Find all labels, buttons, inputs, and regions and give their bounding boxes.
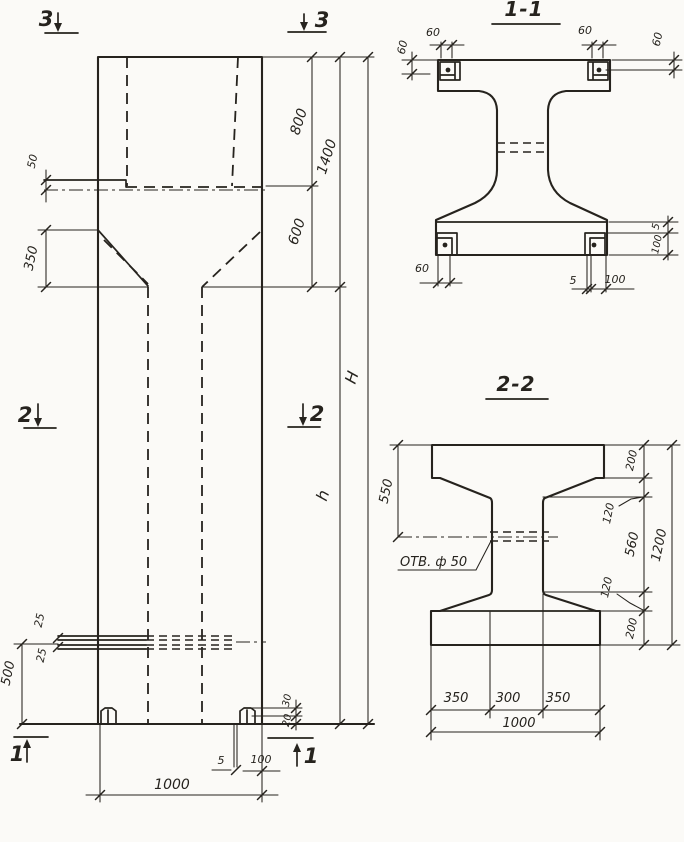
dim-label-5-bottom: 5 (570, 274, 577, 287)
dim-label-200-bottom: 200 (623, 617, 640, 640)
dim-label-550: 550 (377, 478, 397, 505)
dim-label-60-right: 60 (650, 31, 666, 47)
dim-label-120-top: 120 (600, 502, 617, 525)
dim-label-5-right: 5 (651, 222, 663, 231)
marker-1-left: 1 (10, 742, 25, 766)
dim-label-350-left: 350 (444, 691, 469, 706)
dim-label-560: 560 (623, 531, 643, 558)
dim-label-h: h (312, 488, 333, 504)
hidden-anchor-plates (146, 636, 236, 649)
column-elevation-view: 3 3 2 2 1 1 50 350 800 600 1400 h H 25 2… (0, 7, 374, 802)
section-1-1-outline (436, 60, 610, 255)
dim-label-1400: 1400 (314, 137, 340, 176)
dim-label-100-base: 100 (251, 753, 272, 766)
dim-label-350-right: 350 (546, 691, 571, 706)
section-2-2-dim-ticks (394, 441, 677, 737)
section-1-1-web-ties (497, 143, 548, 152)
dim-label-1000-section: 1000 (502, 716, 535, 731)
dim-label-120-bottom: 120 (598, 576, 615, 599)
anchor-dot-bottom-right (592, 243, 597, 248)
section-1-1-view: 1-1 60 60 60 60 60 5 100 5 100 (395, 0, 682, 294)
dim-label-500: 500 (0, 660, 18, 687)
dim-label-60-left: 60 (395, 39, 411, 55)
dim-label-200-top: 200 (623, 449, 640, 472)
section-2-2-title: 2-2 (496, 372, 535, 396)
dim-label-60-top-left: 60 (426, 26, 440, 39)
dim-label-60-top-right: 60 (578, 24, 592, 37)
dim-label-300-mid: 300 (496, 691, 521, 706)
anchor-plates (58, 636, 146, 649)
dim-label-20: 20 (281, 713, 294, 728)
dim-label-800: 800 (287, 107, 311, 137)
hidden-web-edges (104, 57, 262, 724)
marker-2-left: 2 (18, 403, 33, 427)
dim-label-25-lower: 25 (34, 647, 50, 663)
dim-label-100-bottom: 100 (605, 273, 626, 286)
dim-label-100-right: 100 (650, 234, 665, 255)
dim-label-25-upper: 25 (32, 612, 48, 628)
dim-label-50: 50 (25, 153, 41, 169)
ledge-centerline (44, 190, 268, 642)
dim-label-1000: 1000 (154, 777, 190, 793)
marker-1-right: 1 (304, 744, 319, 768)
section-2-2-dim-lines (390, 445, 680, 740)
marker-2-right: 2 (310, 402, 325, 426)
dim-label-600: 600 (285, 217, 309, 247)
dim-label-1200: 1200 (649, 528, 671, 563)
marker-3-left: 3 (39, 7, 54, 31)
section-2-2-dim-labels: 550 ОТВ. ф 50 200 120 560 120 200 1200 3… (377, 449, 671, 731)
anchor-dot-top-right (597, 68, 602, 73)
dim-label-60-bottom-left: 60 (415, 262, 429, 275)
section-2-2-view: 2-2 550 ОТВ. ф 50 200 120 560 120 200 12… (377, 372, 680, 740)
elevation-dim-labels: 50 350 800 600 1400 h H 25 25 500 30 20 … (0, 107, 363, 793)
base-foot-left (101, 708, 116, 724)
section-2-2-outline (431, 445, 604, 645)
section-1-1-title: 1-1 (504, 0, 543, 21)
column-outline (98, 57, 262, 724)
section-markers: 3 3 2 2 1 1 (10, 7, 330, 768)
hole-label: ОТВ. ф 50 (400, 555, 467, 570)
dim-label-5-base: 5 (218, 754, 225, 767)
dim-label-H: H (341, 369, 363, 386)
dim-label-350: 350 (22, 245, 42, 272)
technical-drawing: 3 3 2 2 1 1 50 350 800 600 1400 h H 25 2… (0, 0, 684, 842)
anchor-dot-bottom-left (443, 243, 448, 248)
anchor-dot-top-left (446, 68, 451, 73)
marker-3-right: 3 (315, 8, 330, 32)
dim-label-30: 30 (281, 693, 294, 708)
ledge-edge (44, 180, 126, 187)
drawing-sheet: 3 3 2 2 1 1 50 350 800 600 1400 h H 25 2… (0, 0, 684, 842)
marker-bars (14, 13, 326, 766)
